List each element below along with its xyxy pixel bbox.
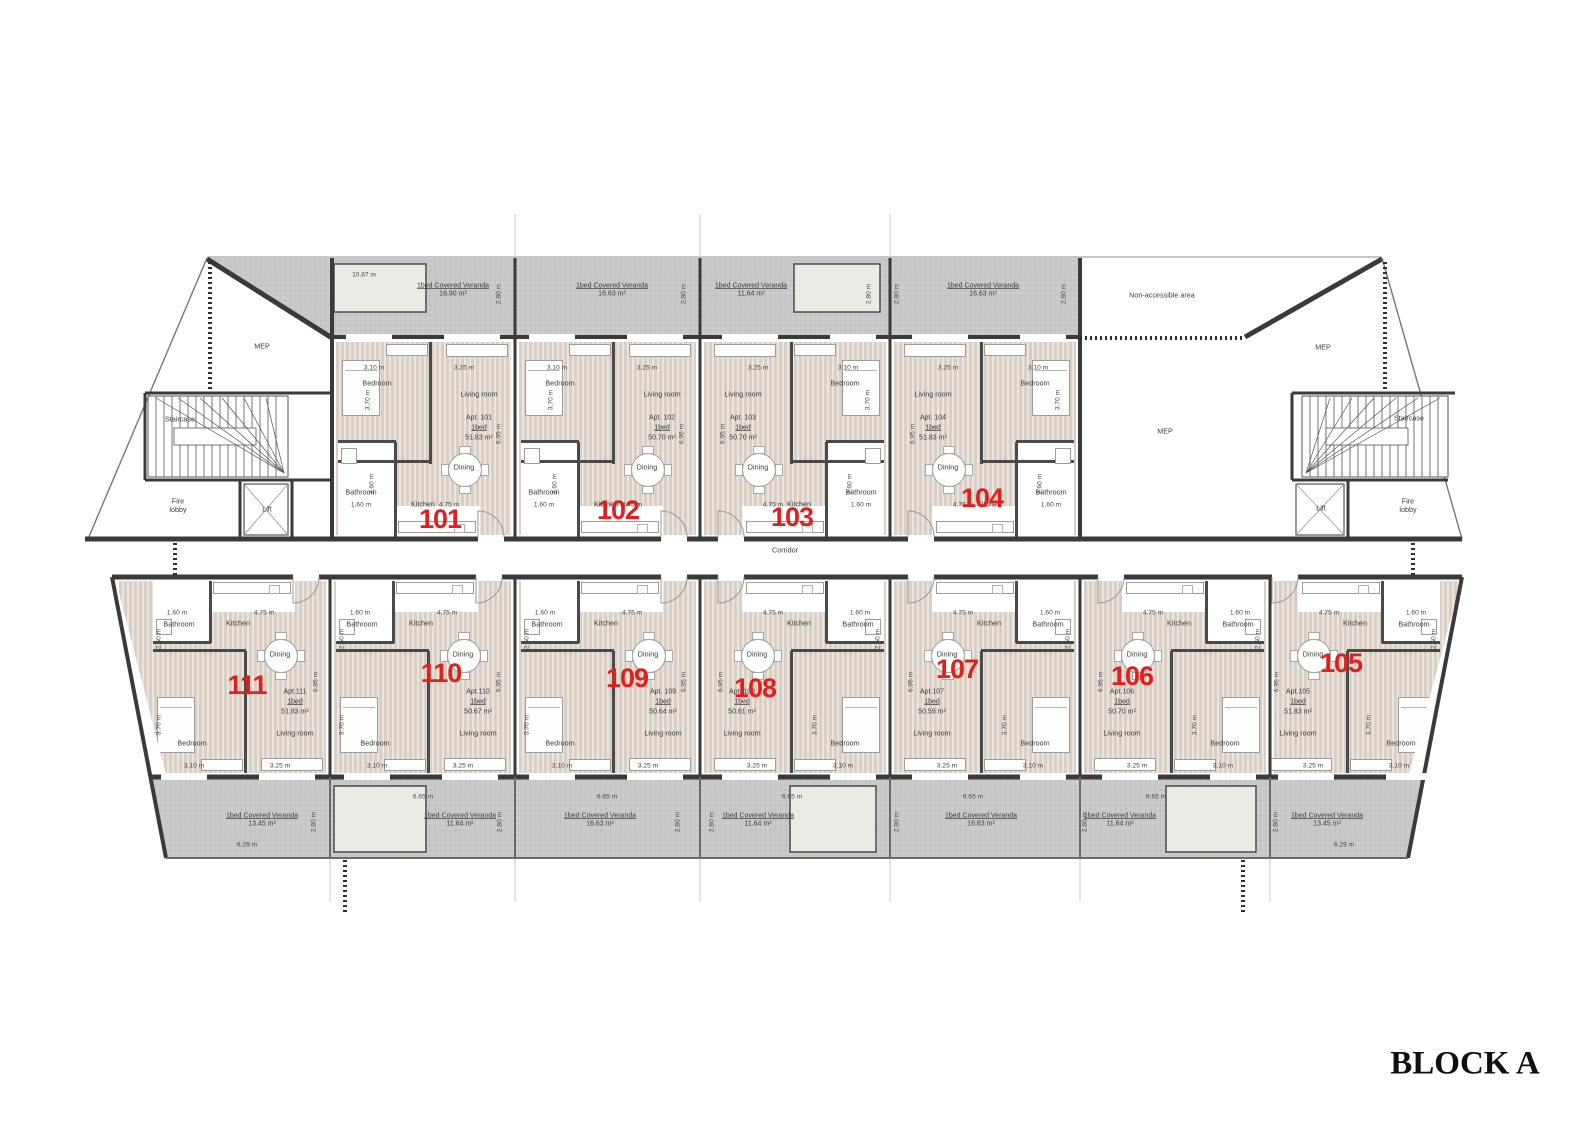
apt-109-dining-label: Dining	[638, 651, 658, 659]
veranda-bottom-0-label: 1bed Covered Veranda13.45 m²	[226, 812, 298, 829]
apt-107-number: 107	[936, 654, 978, 686]
veranda-label-text: 1bed Covered Veranda	[715, 282, 787, 290]
veranda-area-text: 11.64 m²	[424, 820, 496, 828]
apt-108-dims-bath_d: 2.60 m	[874, 629, 882, 649]
apt-107-bathroom-label: Bathroom	[1032, 621, 1063, 629]
fire-lobby-left-label: Fire lobby	[166, 498, 190, 515]
apt-102-number: 102	[597, 495, 639, 527]
veranda-top-1-depth-dim: 2.80 m	[680, 284, 688, 304]
apt-101-living-label: Living room	[460, 391, 497, 399]
apt-104-area: 51.83 m²	[919, 434, 947, 442]
apt-105-dims-bedroom_w: 3.10 m	[1389, 762, 1409, 770]
apt-102-bedroom-label: Bedroom	[545, 380, 574, 388]
apt-110-living-label: Living room	[459, 730, 496, 738]
staircase-right-label: Staircase	[1394, 415, 1424, 423]
apt-103-area: 50.70 m²	[729, 434, 757, 442]
apt-107-living-label: Living room	[913, 730, 950, 738]
apt-106-dims-living_w: 3.25 m	[1127, 762, 1147, 770]
veranda-bottom-2-width-dim: 6.65 m	[597, 793, 617, 801]
veranda-top-2-label: 1bed Covered Veranda11.64 m²	[715, 282, 787, 299]
apt-104-bathroom-label: Bathroom	[1035, 489, 1066, 497]
apt-111-name: Apt.111	[283, 688, 306, 696]
apt-110-dims-depth: 6.95 m	[495, 672, 503, 692]
apt-105-number: 105	[1320, 648, 1362, 680]
apt-103-dims-bedroom_d: 3.70 m	[864, 390, 872, 410]
apt-101-dims-bedroom_d: 3.70 m	[364, 390, 372, 410]
apt-105-dims-kitchen_w: 4.75 m	[1319, 609, 1339, 617]
apt-107-dims-kitchen_w: 4.75 m	[953, 609, 973, 617]
apt-107-dims-living_w: 3.25 m	[937, 762, 957, 770]
apt-103-dims-depth: 6.95 m	[719, 424, 727, 444]
veranda-top-3-depth-dim: 2.80 m	[1060, 284, 1068, 304]
apt-108-bedroom-label: Bedroom	[830, 740, 859, 748]
apt-101-dining-label: Dining	[454, 464, 474, 472]
apt-111-dims-bedroom_d: 3.70 m	[155, 715, 163, 735]
apt-110-dims-kitchen_w: 4.75 m	[437, 609, 457, 617]
fire-lobby-right-label: Fire lobby	[1396, 498, 1420, 515]
apt-108-living-label: Living room	[723, 730, 760, 738]
veranda-area-text: 16.63 m²	[945, 820, 1017, 828]
apt-105-type: 1bed	[1290, 698, 1306, 706]
apt-105-dims-depth: 6.95 m	[1273, 672, 1281, 692]
veranda-bottom-0-width-dim: 6.29 m	[237, 841, 257, 849]
apt-111-dims-depth: 6.95 m	[312, 672, 320, 692]
apt-111-dims-bath_w: 1.60 m	[167, 609, 187, 617]
apt-108-number: 108	[734, 673, 776, 705]
apt-108-bathroom-label: Bathroom	[842, 621, 873, 629]
apt-104-dims-bedroom_w: 3.10 m	[1028, 364, 1048, 372]
apt-111-dims-bedroom_w: 3.10 m	[184, 762, 204, 770]
apt-101-type: 1bed	[471, 424, 487, 432]
veranda-bottom-0-depth-dim: 2.80 m	[310, 812, 318, 832]
mep-right-large-label: MEP	[1157, 428, 1173, 436]
apt-106-type: 1bed	[1114, 698, 1130, 706]
veranda-bottom-2-depth-dim: 2.80 m	[674, 812, 682, 832]
apt-109-dims-bath_w: 1.60 m	[535, 609, 555, 617]
non-accessible-area-label: Non-accessible area	[1129, 292, 1195, 300]
apt-111-living-label: Living room	[276, 730, 313, 738]
apt-104-dims-bedroom_d: 3.70 m	[1054, 390, 1062, 410]
apt-102-name: Apt. 102	[649, 414, 675, 422]
staircase-left-label: Staircase	[165, 416, 195, 424]
veranda-label-text: 1bed Covered Veranda	[945, 812, 1017, 820]
veranda-bottom-6-width-dim: 6.29 m	[1334, 841, 1354, 849]
apt-111-bathroom-label: Bathroom	[163, 621, 194, 629]
veranda-bottom-5-label: 1bed Covered Veranda11.64 m²	[1084, 812, 1156, 829]
block-title: BLOCK A	[1390, 1045, 1539, 1084]
veranda-area-text: 16.63 m²	[576, 290, 648, 298]
apt-101-bathroom-label: Bathroom	[345, 489, 376, 497]
apt-107-bedroom-label: Bedroom	[1020, 740, 1049, 748]
apt-109-dims-depth: 6.95 m	[680, 672, 688, 692]
apt-109-bedroom-label: Bedroom	[545, 740, 574, 748]
apt-102-dims-living_w: 3.25 m	[637, 364, 657, 372]
apt-111-type: 1bed	[287, 698, 303, 706]
apt-105-area: 51.83 m²	[1284, 708, 1312, 716]
apt-106-dims-bath_w: 1.60 m	[1230, 609, 1250, 617]
veranda-area-text: 16.63 m²	[947, 290, 1019, 298]
apt-110-type: 1bed	[470, 698, 486, 706]
apt-103-type: 1bed	[735, 424, 751, 432]
apt-107-name: Apt.107	[920, 688, 944, 696]
apt-105-dims-bath_w: 1.60 m	[1406, 609, 1426, 617]
veranda-top-0-depth-dim: 2.80 m	[495, 284, 503, 304]
apt-109-area: 50.64 m²	[649, 708, 677, 716]
walls-layer	[0, 0, 1588, 1123]
veranda-bottom-4-width-dim: 6.65 m	[963, 793, 983, 801]
apt-110-dims-bedroom_d: 3.70 m	[338, 715, 346, 735]
veranda-bottom-4-label: 1bed Covered Veranda16.63 m²	[945, 812, 1017, 829]
veranda-label-text: 1bed Covered Veranda	[1291, 812, 1363, 820]
apt-107-type: 1bed	[924, 698, 940, 706]
veranda-label-text: 1bed Covered Veranda	[564, 812, 636, 820]
apt-108-dims-living_w: 3.25 m	[747, 762, 767, 770]
veranda-bottom-3-label: 1bed Covered Veranda11.64 m²	[722, 812, 794, 829]
veranda-bottom-2-label: 1bed Covered Veranda16.63 m²	[564, 812, 636, 829]
veranda-label-text: 1bed Covered Veranda	[226, 812, 298, 820]
apt-106-kitchen-label: Kitchen	[1167, 620, 1191, 628]
apt-109-dims-kitchen_w: 4.75 m	[622, 609, 642, 617]
veranda-area-text: 11.64 m²	[722, 820, 794, 828]
apt-102-type: 1bed	[654, 424, 670, 432]
apt-109-dims-bedroom_d: 3.70 m	[523, 715, 531, 735]
apt-103-dining-label: Dining	[748, 464, 768, 472]
veranda-area-text: 11.64 m²	[1084, 820, 1156, 828]
apt-110-bedroom-label: Bedroom	[360, 740, 389, 748]
apt-106-dims-kitchen_w: 4.75 m	[1143, 609, 1163, 617]
apt-109-type: 1bed	[655, 698, 671, 706]
apt-107-kitchen-label: Kitchen	[977, 620, 1001, 628]
apt-104-dims-depth: 6.95 m	[909, 424, 917, 444]
apt-103-number: 103	[771, 502, 813, 534]
apt-104-type: 1bed	[925, 424, 941, 432]
veranda-label-text: 1bed Covered Veranda	[576, 282, 648, 290]
apt-101-dims-living_w: 3.25 m	[454, 364, 474, 372]
apt-108-dining-label: Dining	[747, 651, 767, 659]
apt-102-dims-bath_w: 1.60 m	[534, 501, 554, 509]
apt-111-number: 111	[227, 670, 266, 702]
apt-104-number: 104	[961, 483, 1003, 515]
apt-102-dims-depth: 6.95 m	[678, 424, 686, 444]
apt-111-bedroom-label: Bedroom	[177, 740, 206, 748]
apt-103-bathroom-label: Bathroom	[845, 489, 876, 497]
apt-105-kitchen-label: Kitchen	[1343, 620, 1367, 628]
apt-108-dims-kitchen_w: 4.75 m	[763, 609, 783, 617]
apt-109-dims-living_w: 3.25 m	[638, 762, 658, 770]
apt-103-bedroom-label: Bedroom	[830, 380, 859, 388]
apt-104-dining-label: Dining	[938, 464, 958, 472]
apt-106-living-label: Living room	[1103, 730, 1140, 738]
apt-105-living-label: Living room	[1279, 730, 1316, 738]
veranda-area-text: 11.64 m²	[715, 290, 787, 298]
apt-108-kitchen-label: Kitchen	[787, 620, 811, 628]
veranda-bottom-4-depth-dim: 2.80 m	[893, 812, 901, 832]
lift-left-label: Lift	[262, 506, 272, 514]
apt-110-name: Apt.110	[466, 688, 490, 696]
veranda-bottom-3-depth-dim: 2.80 m	[708, 812, 716, 832]
veranda-label-text: 1bed Covered Veranda	[417, 282, 489, 290]
apt-101-number: 101	[419, 504, 461, 536]
apt-101-bedroom-label: Bedroom	[362, 380, 391, 388]
mep-right-upper-label: MEP	[1315, 344, 1331, 352]
apt-111-kitchen-label: Kitchen	[226, 620, 250, 628]
veranda-label-text: 1bed Covered Veranda	[424, 812, 496, 820]
apt-108-dims-bedroom_d: 3.70 m	[811, 715, 819, 735]
veranda-label-text: 1bed Covered Veranda	[722, 812, 794, 820]
apt-110-dims-living_w: 3.25 m	[453, 762, 473, 770]
apt-110-kitchen-label: Kitchen	[409, 620, 433, 628]
apt-108-dims-depth: 6.95 m	[717, 672, 725, 692]
apt-106-dims-bedroom_w: 3.10 m	[1213, 762, 1233, 770]
apt-110-dims-bath_d: 2.60 m	[338, 629, 346, 649]
apt-109-bathroom-label: Bathroom	[531, 621, 562, 629]
apt-107-dims-bedroom_w: 3.10 m	[1023, 762, 1043, 770]
apt-110-bathroom-label: Bathroom	[346, 621, 377, 629]
apt-108-area: 50.61 m²	[728, 708, 756, 716]
veranda-bottom-6-depth-dim: 2.80 m	[1272, 812, 1280, 832]
apt-106-bedroom-label: Bedroom	[1210, 740, 1239, 748]
apt-107-dims-bath_w: 1.60 m	[1040, 609, 1060, 617]
veranda-area-text: 16.63 m²	[564, 820, 636, 828]
apt-111-dining-label: Dining	[270, 651, 290, 659]
apt-101-dims-bath_w: 1.60 m	[351, 501, 371, 509]
apt-104-dims-bath_w: 1.60 m	[1041, 501, 1061, 509]
apt-105-name: Apt.105	[1286, 688, 1310, 696]
apt-111-dims-kitchen_w: 4.75 m	[254, 609, 274, 617]
veranda-bottom-5-depth-dim: 2.80 m	[1081, 812, 1089, 832]
apt-109-dims-bath_d: 2.60 m	[523, 629, 531, 649]
apt-105-bedroom-label: Bedroom	[1386, 740, 1415, 748]
apt-108-dims-bedroom_w: 3.10 m	[833, 762, 853, 770]
apt-102-bathroom-label: Bathroom	[528, 489, 559, 497]
apt-102-living-label: Living room	[643, 391, 680, 399]
apt-106-bathroom-label: Bathroom	[1222, 621, 1253, 629]
corridor-label: Corridor	[772, 547, 798, 555]
veranda-bottom-3-width-dim: 6.65 m	[782, 793, 802, 801]
apt-111-dims-bath_d: 2.60 m	[155, 629, 163, 649]
apt-110-dims-bedroom_w: 3.10 m	[367, 762, 387, 770]
apt-110-number: 110	[421, 658, 462, 690]
veranda-top-3-label: 1bed Covered Veranda16.63 m²	[947, 282, 1019, 299]
apt-101-name: Apt. 101	[466, 414, 492, 422]
apt-109-number: 109	[606, 663, 648, 695]
apt-105-dims-bath_d: 2.60 m	[1430, 629, 1438, 649]
veranda-top-2-depth-dim: 2.80 m	[865, 284, 873, 304]
apt-106-area: 50.70 m²	[1108, 708, 1136, 716]
apt-110-dims-bath_w: 1.60 m	[350, 609, 370, 617]
floor-plan: Corridor Non-accessible area MEP MEP MEP…	[0, 0, 1588, 1123]
apt-103-living-label: Living room	[724, 391, 761, 399]
veranda-bottom-1-label: 1bed Covered Veranda11.64 m²	[424, 812, 496, 829]
lift-right-label: Lift	[1316, 505, 1326, 513]
mep-left-label: MEP	[254, 343, 270, 351]
apt-102-dining-label: Dining	[637, 464, 657, 472]
apt-106-dining-label: Dining	[1127, 651, 1147, 659]
apt-109-kitchen-label: Kitchen	[594, 620, 618, 628]
veranda-top-1-label: 1bed Covered Veranda16.63 m²	[576, 282, 648, 299]
veranda-area-text: 16.90 m²	[417, 290, 489, 298]
apt-108-dims-bath_w: 1.60 m	[850, 609, 870, 617]
apt-105-dims-living_w: 3.25 m	[1303, 762, 1323, 770]
veranda-bottom-6-label: 1bed Covered Veranda13.45 m²	[1291, 812, 1363, 829]
apt-104-living-label: Living room	[914, 391, 951, 399]
pool-width-dim: 10.87 m	[352, 271, 376, 279]
apt-102-dims-bedroom_d: 3.70 m	[547, 390, 555, 410]
apt-103-dims-bath_w: 1.60 m	[851, 501, 871, 509]
apt-109-dims-bedroom_w: 3.10 m	[552, 762, 572, 770]
apt-106-dims-depth: 6.95 m	[1097, 672, 1105, 692]
apt-103-dims-living_w: 3.25 m	[748, 364, 768, 372]
apt-107-dims-bedroom_d: 3.70 m	[1001, 715, 1009, 735]
apt-106-number: 106	[1111, 661, 1153, 693]
apt-106-dims-bedroom_d: 3.70 m	[1191, 715, 1199, 735]
apt-107-area: 50.59 m²	[918, 708, 946, 716]
veranda-top-0-label: 1bed Covered Veranda16.90 m²	[417, 282, 489, 299]
veranda-label-text: 1bed Covered Veranda	[1084, 812, 1156, 820]
apt-103-name: Apt. 103	[730, 414, 756, 422]
apt-101-dims-depth: 6.95 m	[495, 424, 503, 444]
veranda-label-text: 1bed Covered Veranda	[947, 282, 1019, 290]
veranda-bottom-1-width-dim: 6.65 m	[413, 793, 433, 801]
apt-111-dims-living_w: 3.25 m	[270, 762, 290, 770]
apt-109-living-label: Living room	[644, 730, 681, 738]
apt-104-dims-living_w: 3.25 m	[938, 364, 958, 372]
veranda-area-text: 13.45 m²	[226, 820, 298, 828]
veranda-bottom-5-width-dim: 6.65 m	[1146, 793, 1166, 801]
apt-107-dims-bath_d: 2.60 m	[1064, 629, 1072, 649]
apt-105-bathroom-label: Bathroom	[1398, 621, 1429, 629]
apt-104-bedroom-label: Bedroom	[1020, 380, 1049, 388]
apt-102-dims-bedroom_w: 3.10 m	[547, 364, 567, 372]
apt-107-dims-depth: 6.95 m	[907, 672, 915, 692]
apt-101-area: 51.83 m²	[465, 434, 493, 442]
apt-111-area: 51.83 m²	[281, 708, 309, 716]
apt-105-dims-bedroom_d: 3.70 m	[1365, 715, 1373, 735]
veranda-area-text: 13.45 m²	[1291, 820, 1363, 828]
apt-102-area: 50.70 m²	[648, 434, 676, 442]
apt-110-area: 50.67 m²	[464, 708, 492, 716]
apt-103-dims-bedroom_w: 3.10 m	[838, 364, 858, 372]
apt-106-dims-bath_d: 2.60 m	[1254, 629, 1262, 649]
apt-104-name: Apt. 104	[920, 414, 946, 422]
apt-109-name: Apt. 109	[650, 688, 676, 696]
apt-101-dims-bedroom_w: 3.10 m	[364, 364, 384, 372]
veranda-top-3-depth-dim: 2.80 m	[893, 284, 901, 304]
veranda-bottom-1-depth-dim: 2.80 m	[496, 812, 504, 832]
